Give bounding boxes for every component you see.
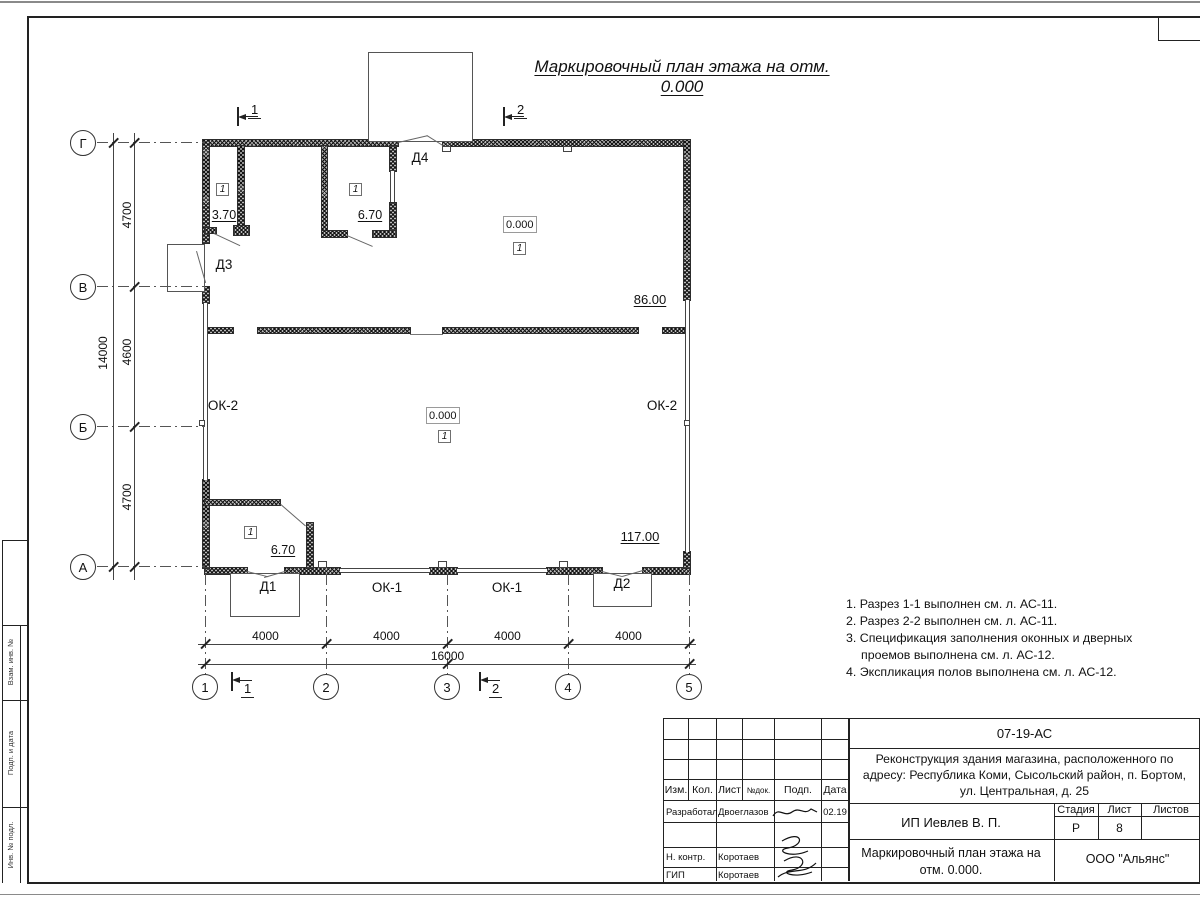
window-ok2-right-band [685, 300, 690, 552]
floor-type-mark: 1 [513, 242, 526, 255]
door-label-d2: Д2 [609, 576, 635, 591]
axis-circle-a: А [70, 554, 96, 580]
floor-type-mark: 1 [216, 183, 229, 196]
frame-top [27, 16, 1200, 18]
room2-bottom-stub-left [322, 231, 347, 237]
window-label-ok1-right: ОК-1 [486, 580, 528, 595]
signature-scribble-2 [770, 827, 820, 880]
interior-wall-seg-4 [663, 328, 684, 333]
dim-label-16000: 16000 [417, 649, 478, 663]
pier-top-axis3 [442, 146, 451, 152]
dim-label-4700-bottom: 4700 [120, 477, 134, 517]
elevation-mark-upper: 0.000 [503, 216, 537, 233]
note-line-2: 2. Разрез 2-2 выполнен см. л. АС-11. [846, 613, 1142, 630]
section-2-bottom-arrow [480, 677, 488, 683]
tb-line [664, 759, 848, 760]
tb-list-value: 8 [1098, 819, 1141, 836]
window-ok1-right [457, 568, 547, 573]
tb-line [848, 748, 1200, 749]
room1-wall-foot [234, 226, 249, 235]
margin-label-vzam: Взам. инв. № [6, 627, 16, 697]
tb-line [848, 719, 850, 881]
room2-left-wall [322, 146, 327, 237]
pier-bottom-axis3 [438, 561, 447, 568]
tb-code: 07-19-АС [848, 724, 1200, 742]
margin-divider-3 [2, 700, 27, 701]
vestibule-outline [368, 52, 473, 142]
room-area-bottom-left: 6.70 [265, 543, 301, 557]
dim-label-4000-2: 4000 [356, 629, 417, 643]
dim-label-4600: 4600 [120, 332, 134, 372]
title-block: Изм. Кол. Лист №док. Подп. Дата Разработ… [663, 718, 1200, 883]
sheet-outer-bottom-edge [0, 894, 1200, 895]
floor-type-mark: 1 [244, 526, 257, 539]
axis-line-1 [205, 574, 206, 674]
tb-stage-label: Стадия [1054, 804, 1098, 816]
tb-line [848, 839, 1200, 840]
tb-line [664, 847, 848, 848]
dim-label-14000: 14000 [96, 329, 110, 377]
tb-list-label: Лист [1098, 804, 1141, 816]
tb-line [1054, 816, 1200, 817]
tb-col-kol: Кол. [689, 783, 716, 797]
dim-line-left-total [113, 133, 114, 580]
axis-circle-v: В [70, 274, 96, 300]
tb-name-korotaev-1: Коротаев [718, 850, 772, 864]
axis-circle-4: 4 [555, 674, 581, 700]
axis-circle-5: 5 [676, 674, 702, 700]
interior-wall-seg-1 [205, 328, 233, 333]
floor-type-mark: 1 [349, 183, 362, 196]
pier-top-axis4 [563, 146, 572, 152]
axis-circle-g: Г [70, 130, 96, 156]
tb-line [664, 739, 848, 740]
window-label-ok2-left: ОК-2 [202, 398, 244, 413]
sheet-outer-top-edge [0, 1, 1200, 3]
margin-label-inv: Инв. № подл. [6, 810, 16, 880]
window-ok2-left-band [203, 303, 208, 480]
drawing-sheet: { "sheet": { "title": "Маркировочный пла… [0, 0, 1200, 900]
room5-right-wall [307, 523, 313, 568]
note-line-1: 1. Разрез 1-1 выполнен см. л. АС-11. [846, 596, 1142, 613]
exterior-wall-right-lower [684, 552, 690, 568]
section-1-top-label: 1 [248, 103, 261, 119]
margin-divider-2 [2, 625, 27, 626]
window-ok2-right-mark [684, 420, 690, 426]
exterior-wall-right-upper [684, 140, 690, 300]
axis-circle-2: 2 [313, 674, 339, 700]
axis-line-2 [326, 574, 327, 674]
note-line-3: 3. Спецификация заполнения оконных и две… [846, 630, 1142, 664]
margin-label-podp: Подп. и дата [6, 718, 16, 788]
door-label-d1: Д1 [255, 579, 281, 594]
tb-client: ИП Иевлев В. П. [848, 811, 1054, 833]
room5-door-swing [280, 504, 306, 527]
window-ok1-left [340, 568, 430, 573]
tb-stage-value: Р [1054, 819, 1098, 836]
tb-line [664, 822, 848, 823]
tb-col-list: Лист [717, 783, 742, 797]
pier-bottom-axis2 [318, 561, 327, 568]
margin-divider-1 [2, 540, 27, 541]
tb-line [664, 800, 848, 801]
dim-label-4000-4: 4000 [598, 629, 659, 643]
note-line-4: 4. Экспликация полов выполнена см. л. АС… [846, 664, 1142, 681]
tb-role-nkontr: Н. контр. [666, 850, 716, 864]
signature-scribble-1 [771, 804, 819, 821]
interior-door-threshold [410, 334, 443, 335]
room2-right-wall-upper [390, 146, 396, 171]
tb-col-data: Дата [822, 783, 848, 797]
room2-right-wall-window [390, 171, 395, 203]
section-1-top-arrow [238, 114, 246, 120]
room-area-hall-main: 117.00 [615, 529, 665, 544]
door-label-d3: Д3 [211, 257, 237, 272]
room-area-top-middle: 6.70 [352, 208, 388, 222]
axis-line-5 [689, 574, 690, 674]
tb-project: Реконструкция здания магазина, расположе… [856, 750, 1193, 800]
exterior-wall-bottom-3 [430, 568, 457, 574]
drawing-title: Маркировочный план этажа на отм. 0.000 [512, 57, 852, 97]
tb-role-razrabotal: Разработал [666, 805, 716, 819]
room2-door-swing [347, 235, 373, 247]
elevation-mark-main: 0.000 [426, 407, 460, 424]
dim-label-4700-top: 4700 [120, 195, 134, 235]
room5-top-wall [205, 500, 280, 505]
dim-label-4000-1: 4000 [235, 629, 296, 643]
section-2-top-arrow [504, 114, 512, 120]
axis-circle-1: 1 [192, 674, 218, 700]
tb-doc-title: Маркировочный план этажа на отм. 0.000. [858, 845, 1044, 879]
pier-bottom-axis4 [559, 561, 568, 568]
dim-line-left-segments [134, 133, 135, 580]
tb-listov-label: Листов [1141, 804, 1200, 816]
tb-organization: ООО "Альянс" [1054, 849, 1200, 869]
floor-type-mark: 1 [438, 430, 451, 443]
section-1-bottom-arrow [232, 677, 240, 683]
interior-wall-seg-3 [443, 328, 638, 333]
dim-label-4000-3: 4000 [477, 629, 538, 643]
tb-col-podp: Подп. [775, 783, 821, 797]
tb-listov-value [1141, 819, 1200, 836]
tb-col-izm: Изм. [664, 783, 688, 797]
room-area-hall-upper: 86.00 [626, 292, 674, 307]
tb-name-dvoeglazov: Двоеглазов [718, 805, 772, 819]
tb-role-gip: ГИП [666, 868, 716, 882]
door-label-d4: Д4 [407, 150, 433, 165]
tb-name-korotaev-2: Коротаев [718, 868, 772, 882]
window-label-ok1-left: ОК-1 [366, 580, 408, 595]
porch-d3-outline [167, 244, 205, 292]
section-1-bottom-label: 1 [241, 682, 254, 698]
room2-bottom-stub-right [373, 231, 396, 237]
axis-circle-3: 3 [434, 674, 460, 700]
room2-right-wall-lower [390, 203, 396, 232]
axis-line-4 [568, 574, 569, 674]
exterior-wall-left-lower [203, 480, 209, 568]
section-2-top-label: 2 [514, 103, 527, 119]
tb-date: 02.19 [822, 806, 848, 818]
margin-column-inner-line [20, 625, 21, 883]
window-label-ok2-right: ОК-2 [641, 398, 683, 413]
axis-circle-b: Б [70, 414, 96, 440]
tb-line [664, 779, 848, 780]
corner-reference-box [1158, 17, 1200, 41]
interior-wall-seg-2 [258, 328, 410, 333]
margin-column-outer-line [2, 540, 3, 883]
section-2-bottom-label: 2 [489, 682, 502, 698]
frame-left [27, 16, 29, 883]
notes-block: 1. Разрез 1-1 выполнен см. л. АС-11. 2. … [846, 596, 1142, 681]
room-area-top-left: 3.70 [206, 208, 242, 222]
tb-col-ndok: №док. [743, 783, 774, 797]
margin-divider-4 [2, 807, 27, 808]
